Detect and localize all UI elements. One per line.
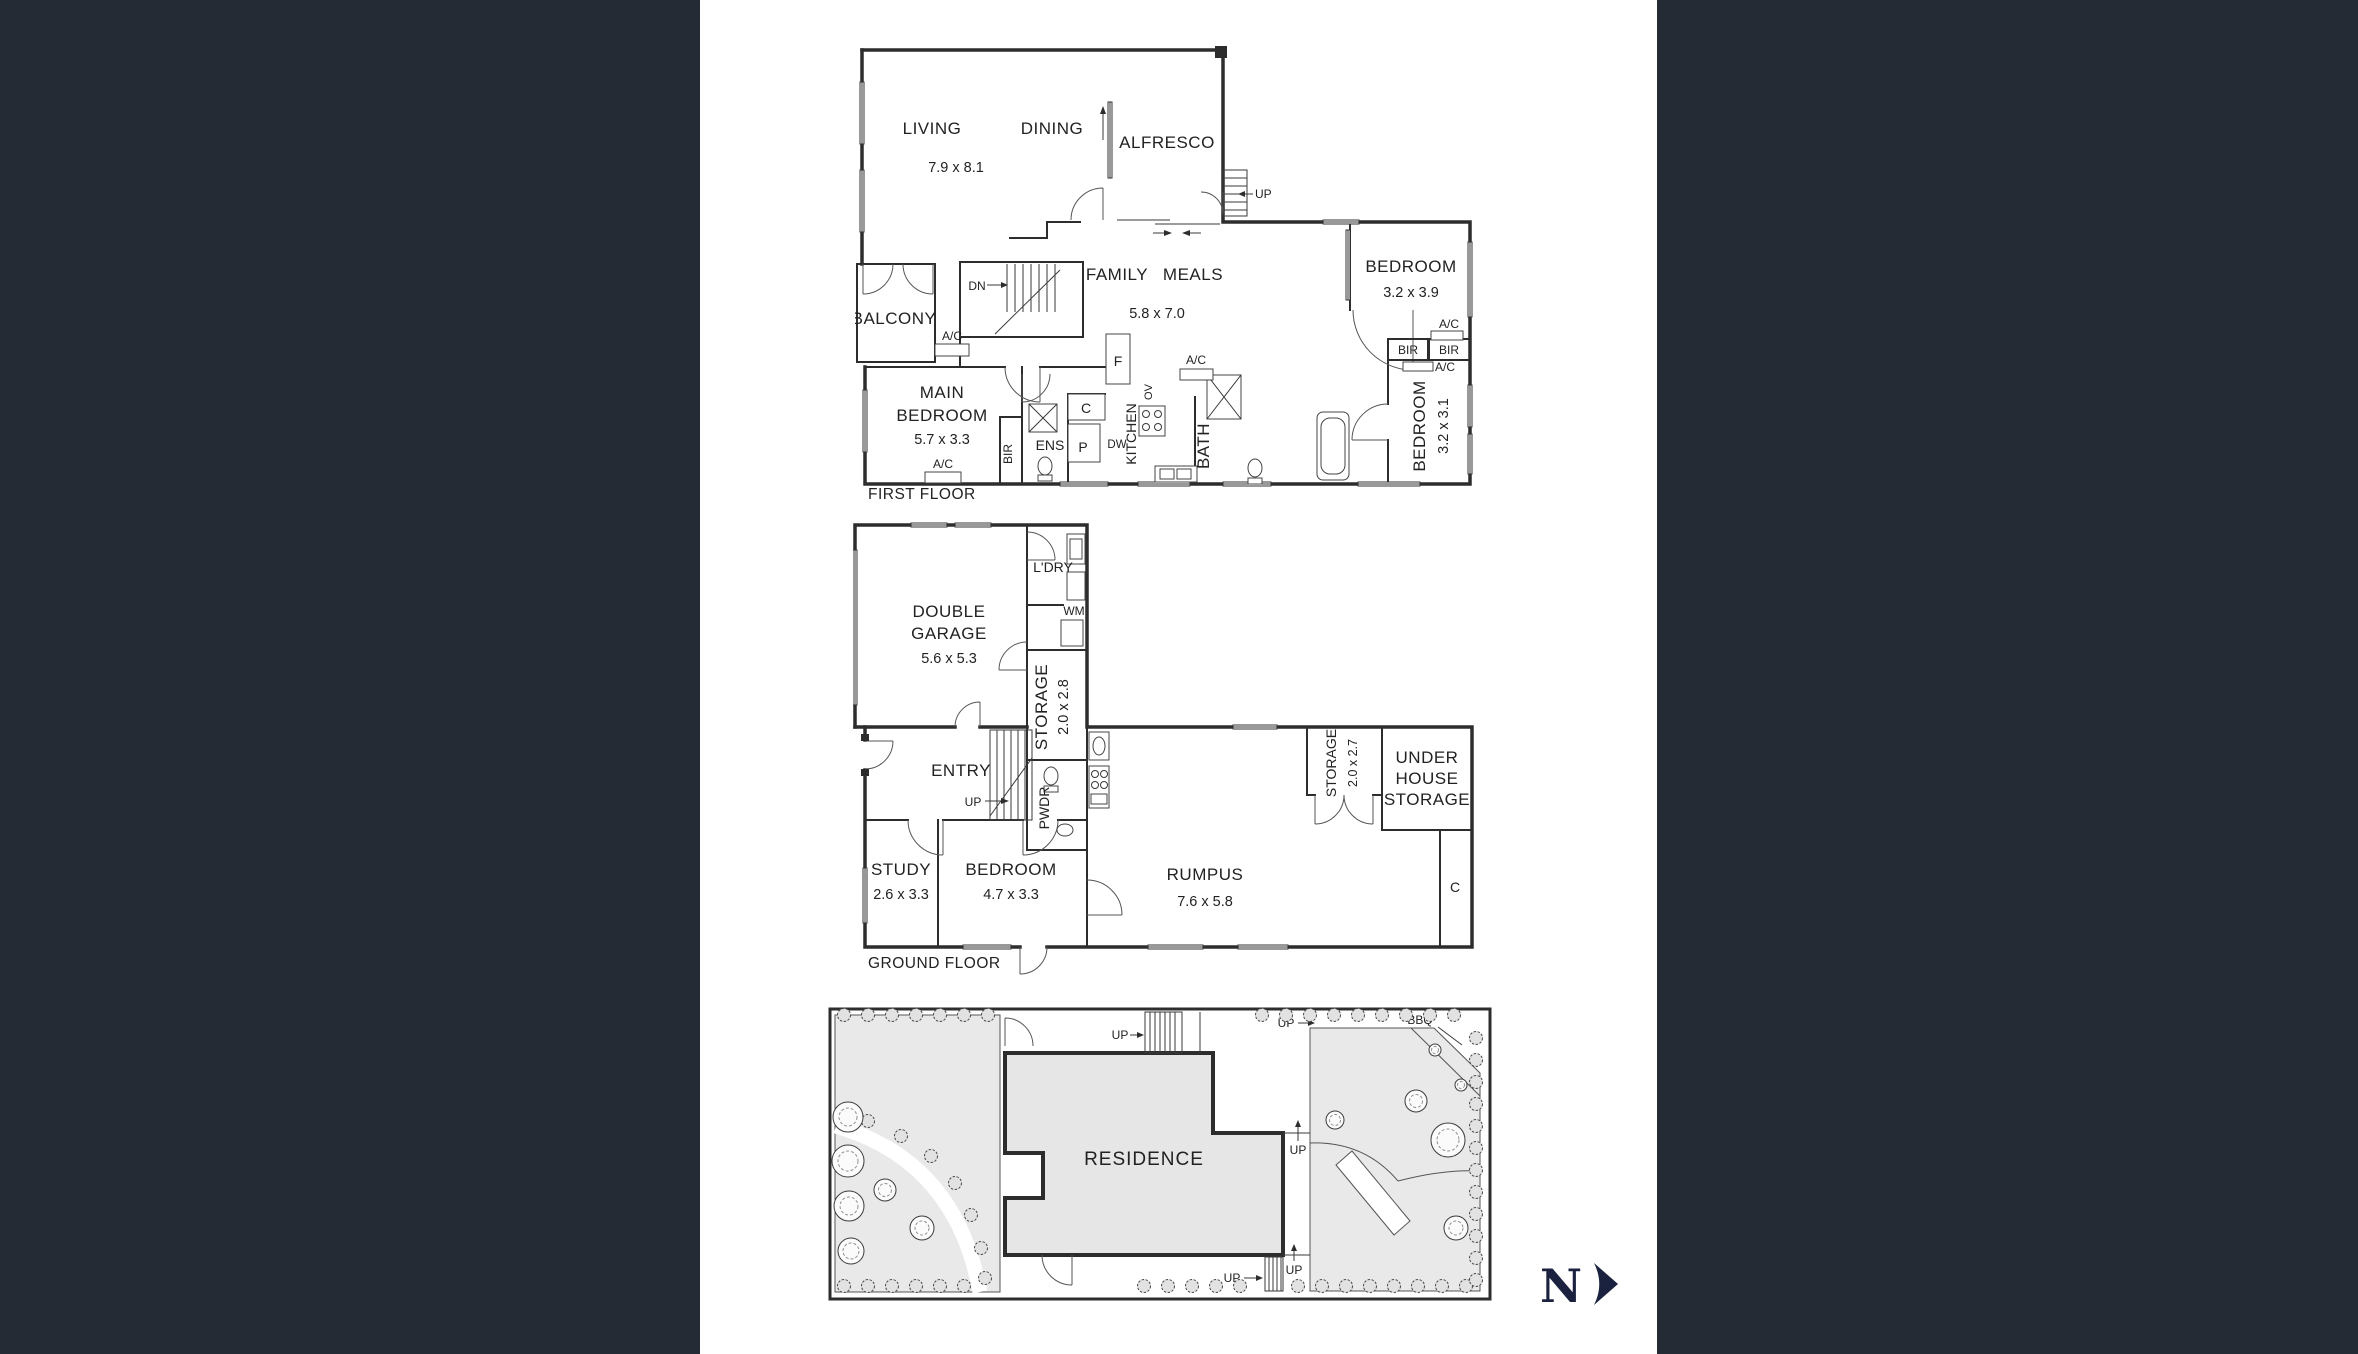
bedroom-study-walls [865, 820, 1087, 947]
pantry-label: P [1078, 439, 1087, 455]
dim-bedroom2: 3.2 x 3.9 [1383, 285, 1439, 301]
stove-icon [1139, 406, 1165, 436]
up-label: UP [1286, 1263, 1303, 1277]
residence-label: RESIDENCE [1084, 1149, 1204, 1170]
dim-study: 2.6 x 3.3 [873, 887, 929, 903]
room-label-balcony: BALCONY [855, 309, 936, 328]
cupboard-label: C [1450, 879, 1460, 895]
ac-label: A/C [1186, 353, 1206, 367]
up-label: UP [1290, 1143, 1307, 1157]
right-dark-sidebar [1657, 0, 2358, 1354]
room-label-study: STUDY [871, 860, 931, 879]
north-arrow-icon [1594, 1263, 1618, 1305]
uhs-label-1: UNDER [1396, 748, 1459, 767]
up-label: UP [1112, 1028, 1129, 1042]
room-label-main-bedroom-1: MAIN [920, 383, 965, 402]
tree-icon [874, 1179, 896, 1201]
dim-garage: 5.6 x 5.3 [921, 651, 977, 667]
dim-main-bedroom: 5.7 x 3.3 [914, 432, 970, 448]
door-post [861, 769, 869, 776]
tree-icon [833, 1102, 863, 1132]
bir-label: BIR [1439, 343, 1459, 357]
oven-label: OV [1143, 383, 1155, 400]
dim-family-meals: 5.8 x 7.0 [1129, 306, 1185, 322]
bathtub-icon [1317, 412, 1349, 480]
bir-label: BIR [1398, 343, 1418, 357]
uhs-label-3: STORAGE [1384, 790, 1470, 809]
left-dark-sidebar [0, 0, 700, 1354]
room-label-bedroom3: BEDROOM [1410, 380, 1429, 471]
door-post [861, 734, 869, 741]
room-label-bedroom2: BEDROOM [1365, 257, 1456, 276]
bath-label: BATH [1194, 423, 1213, 469]
fridge-label: F [1114, 353, 1123, 369]
door-swing-arrow [1100, 106, 1106, 140]
tree-icon [1431, 1123, 1465, 1157]
wm-label: WM [1063, 604, 1084, 618]
dim-living: 7.9 x 8.1 [928, 160, 984, 176]
ensuite-toilet-icon [1038, 457, 1052, 481]
ensuite-shower-icon [1029, 404, 1057, 432]
ac-unit [1431, 331, 1463, 340]
laundry-label: L'DRY [1033, 559, 1073, 575]
stairs-down [995, 264, 1060, 334]
compass-n-label: N [1540, 1260, 1582, 1308]
kitchenette-icon [1089, 732, 1109, 808]
floor-label-ground: GROUND FLOOR [868, 955, 1001, 972]
kitchen-label: KITCHEN [1123, 403, 1139, 464]
door-arcs [865, 532, 1373, 974]
tree-icon [1429, 1044, 1441, 1056]
room-label-alfresco: ALFRESCO [1119, 133, 1215, 152]
first-floor-plan: LIVING 7.9 x 8.1 DINING ALFRESCO UP FAMI… [855, 42, 1475, 504]
dining-family-wall [1010, 222, 1080, 238]
corner-post [1215, 46, 1227, 58]
site-plan: RESIDENCE UP UP UP UP UP [828, 993, 1493, 1305]
dim-bedroom: 4.7 x 3.3 [983, 887, 1039, 903]
tree-icon [834, 1191, 864, 1221]
ac-label: A/C [1435, 360, 1455, 374]
dim-rumpus: 7.6 x 5.8 [1177, 894, 1233, 910]
floor-label-first: FIRST FLOOR [868, 486, 976, 503]
tree-icon [1455, 1079, 1467, 1091]
room-label-living: LIVING [903, 119, 962, 138]
bir-label: BIR [1001, 444, 1015, 464]
tree-icon [1405, 1090, 1427, 1112]
ac-label: A/C [933, 457, 953, 471]
bath-shower-icon [1207, 375, 1241, 419]
room-label-family: FAMILY [1086, 265, 1148, 284]
room-label-garage-2: GARAGE [911, 624, 987, 643]
dim-bedroom3: 3.2 x 3.1 [1436, 398, 1452, 454]
pwdr-label: PWDR [1036, 787, 1052, 830]
outer-wall [855, 525, 1472, 947]
dishwasher-label: DW [1107, 439, 1126, 451]
cupboard-label: C [1081, 400, 1091, 416]
ac-label: A/C [942, 329, 962, 343]
right-garden [1310, 1028, 1480, 1291]
sink-icon [1155, 466, 1197, 482]
ac-unit [1180, 369, 1213, 380]
washing-machine-icon [1061, 620, 1083, 646]
bath-toilet-icon [1248, 459, 1262, 484]
room-label-entry: ENTRY [931, 761, 991, 780]
stair-enclosure [960, 262, 1083, 337]
up-arrow [1238, 191, 1253, 197]
uhs-label-2: HOUSE [1396, 769, 1459, 788]
room-label-garage-1: DOUBLE [913, 602, 986, 621]
tree-icon [1444, 1216, 1468, 1240]
dim-storage1: 2.0 x 2.8 [1056, 679, 1072, 735]
room-label-rumpus: RUMPUS [1167, 865, 1244, 884]
ac-label: A/C [1439, 317, 1459, 331]
storage2-label: STORAGE [1323, 729, 1339, 797]
room-label-bedroom: BEDROOM [965, 860, 1056, 879]
sliding-door [1117, 220, 1220, 236]
ground-floor-plan: DOUBLE GARAGE 5.6 x 5.3 L'DRY WM STORAGE… [853, 520, 1475, 980]
tree-icon [1326, 1111, 1344, 1129]
ac-unit [1403, 362, 1433, 371]
floorplan-page: { "colors": { "sidebar": "#252b35", "wal… [0, 0, 2358, 1354]
north-compass: N [1538, 1260, 1628, 1308]
stairs-dn-label: DN [968, 279, 985, 293]
room-label-dining: DINING [1021, 119, 1084, 138]
dim-storage2: 2.0 x 2.7 [1346, 739, 1360, 787]
room-label-meals: MEALS [1163, 265, 1223, 284]
storage1-label: STORAGE [1032, 664, 1051, 750]
tree-icon [832, 1145, 864, 1177]
stairs-up [990, 730, 1032, 820]
tree-icon [838, 1238, 864, 1264]
stairs-up-label: UP [965, 795, 982, 809]
ens-label: ENS [1036, 437, 1065, 453]
ac-unit [925, 472, 961, 483]
tree-icon [910, 1216, 934, 1240]
ac-unit [935, 344, 969, 356]
floorplan-canvas: LIVING 7.9 x 8.1 DINING ALFRESCO UP FAMI… [700, 0, 1657, 1354]
dn-arrow [987, 282, 1008, 288]
stairs-up-label: UP [1255, 187, 1272, 201]
room-label-main-bedroom-2: BEDROOM [896, 406, 987, 425]
